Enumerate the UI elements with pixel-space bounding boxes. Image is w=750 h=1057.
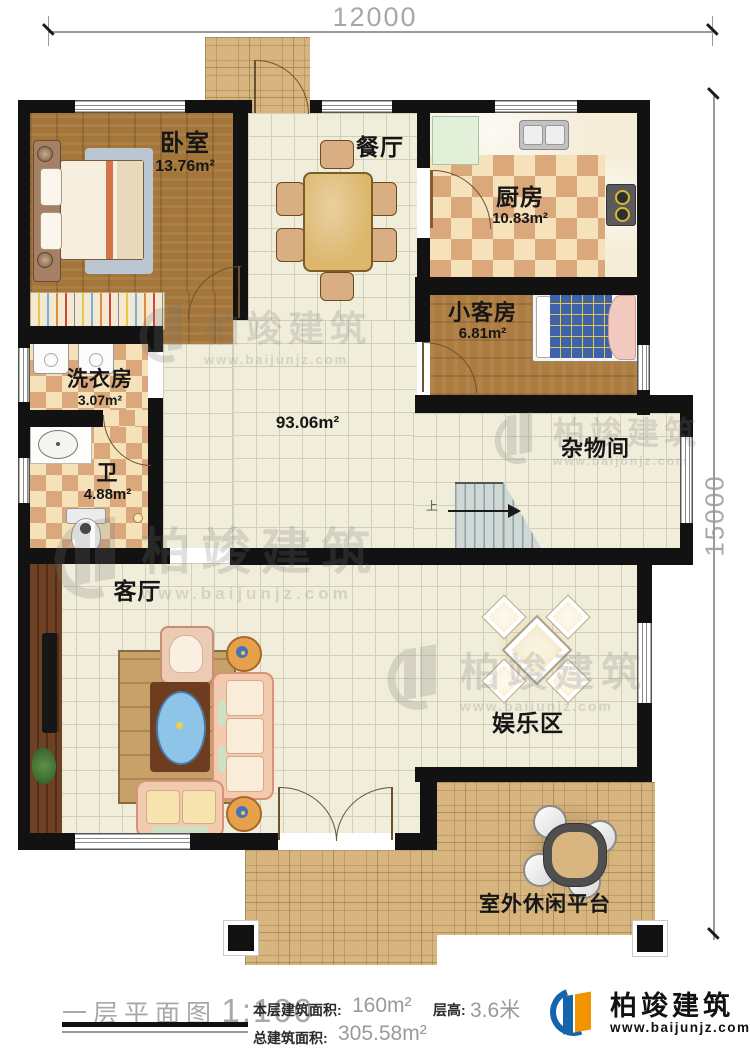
dining-label: 餐厅 bbox=[340, 134, 420, 160]
dining-window bbox=[322, 100, 392, 113]
dining-chair bbox=[276, 228, 305, 262]
hall-area-label: 93.06m² bbox=[255, 413, 360, 433]
dining-chair bbox=[276, 182, 305, 216]
bathroom-label: 卫 4.88m² bbox=[70, 462, 145, 503]
headboard-ornament bbox=[37, 146, 53, 162]
patio-door-leaf bbox=[391, 787, 393, 840]
wall bbox=[310, 100, 322, 113]
brand-website: www.baijunjz.com bbox=[610, 1020, 750, 1035]
stairs-arrow-line bbox=[448, 510, 510, 512]
coffee-table bbox=[150, 682, 210, 772]
story-height-value: 3.6米 bbox=[470, 994, 520, 1024]
floor-area-value: 160m² bbox=[352, 994, 412, 1018]
armchair bbox=[160, 626, 214, 684]
guest-bed bbox=[532, 292, 639, 362]
bedroom-window bbox=[75, 100, 185, 113]
watermark-logo-icon bbox=[495, 412, 543, 464]
stairs-up-label: 上 bbox=[426, 497, 438, 514]
plan-title-underline-bold bbox=[62, 1022, 248, 1027]
watermark-name: 柏竣建筑 bbox=[460, 640, 648, 698]
kitchen-window bbox=[495, 100, 577, 113]
column bbox=[224, 921, 258, 955]
watermark: 柏竣建筑 www.baijunjz.com bbox=[388, 640, 648, 714]
tv bbox=[42, 633, 57, 733]
pillow bbox=[40, 168, 62, 206]
wall bbox=[18, 833, 75, 850]
brand-name: 柏竣建筑 bbox=[610, 992, 750, 1020]
entertainment-label: 娱乐区 bbox=[478, 710, 578, 736]
kitchen-label: 厨房 10.83m² bbox=[465, 184, 575, 228]
watermark-name: 柏竣建筑 bbox=[204, 300, 372, 352]
wall bbox=[417, 277, 650, 295]
stairs-arrowhead bbox=[508, 504, 521, 518]
right-dimension-value: 15000 bbox=[700, 446, 731, 586]
outdoor-platform-label: 室外休闲平台 bbox=[455, 893, 635, 917]
wall bbox=[417, 238, 430, 277]
sofa bbox=[212, 672, 274, 800]
watermark-site: www.baijunjz.com bbox=[141, 584, 381, 604]
wall bbox=[392, 100, 495, 113]
headboard-ornament bbox=[37, 252, 53, 268]
top-dimension-value: 12000 bbox=[300, 2, 450, 33]
total-area-label: 总建筑面积: bbox=[253, 1028, 328, 1048]
brand-logo-icon bbox=[550, 992, 602, 1038]
pillow bbox=[40, 212, 62, 250]
round-stool bbox=[226, 796, 262, 832]
watermark-logo-icon bbox=[140, 305, 194, 363]
plan-title-underline-thin bbox=[62, 1031, 248, 1033]
dining-chair bbox=[320, 272, 354, 301]
floor-plan: 12000 15000 bbox=[0, 0, 750, 1057]
dining-table bbox=[303, 172, 373, 272]
laundry-label: 洗衣房 3.07m² bbox=[45, 368, 155, 408]
guest-room-label: 小客房 6.81m² bbox=[430, 300, 535, 343]
wall bbox=[415, 277, 430, 342]
wall bbox=[415, 767, 652, 782]
watermark: 柏竣建筑 www.baijunjz.com bbox=[140, 300, 372, 367]
top-dimension-line bbox=[48, 31, 713, 33]
patio-table bbox=[544, 824, 606, 886]
bathroom-sink bbox=[38, 430, 78, 459]
story-height-label: 层高: bbox=[433, 1000, 466, 1020]
wall bbox=[18, 100, 30, 348]
total-area-value: 305.58m² bbox=[338, 1022, 427, 1046]
guest-room-window bbox=[637, 345, 650, 390]
right-dimension-line bbox=[713, 95, 715, 940]
storage-label: 杂物间 bbox=[548, 436, 643, 461]
wall bbox=[18, 410, 103, 427]
living-room-label: 客厅 bbox=[100, 578, 175, 604]
laundry-window bbox=[18, 348, 30, 402]
floor-area-label: 本层建筑面积: bbox=[253, 1000, 342, 1020]
loveseat bbox=[136, 780, 224, 838]
bedroom-label: 卧室 13.76m² bbox=[130, 130, 240, 176]
kitchen-sink bbox=[519, 120, 569, 150]
watermark-logo-icon bbox=[388, 644, 450, 710]
stairs bbox=[455, 482, 503, 550]
column bbox=[633, 921, 667, 956]
brand-logo: 柏竣建筑 www.baijunjz.com bbox=[550, 992, 750, 1038]
living-room-window bbox=[75, 833, 190, 850]
wall bbox=[190, 833, 278, 850]
watermark-site: www.baijunjz.com bbox=[204, 352, 372, 367]
bathroom-window bbox=[18, 458, 30, 503]
wall bbox=[637, 563, 652, 623]
refrigerator bbox=[432, 116, 479, 165]
watermark-name: 柏竣建筑 bbox=[141, 512, 381, 584]
round-stool bbox=[226, 636, 262, 672]
plant bbox=[32, 748, 56, 784]
stove bbox=[606, 184, 636, 226]
